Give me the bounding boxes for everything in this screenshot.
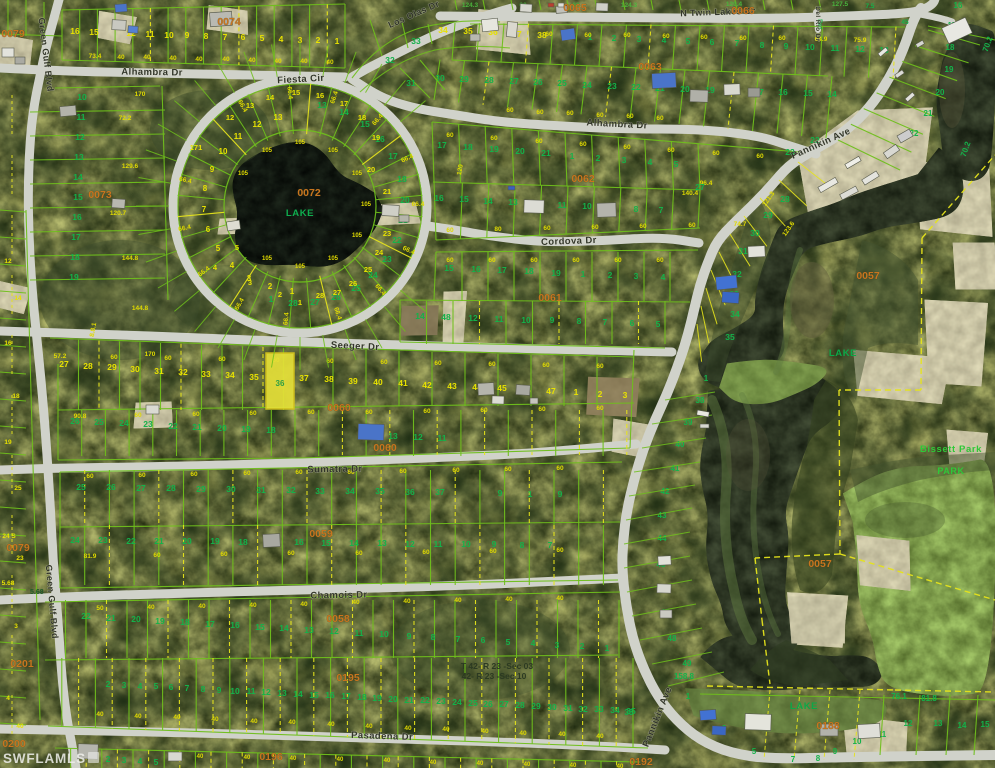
svg-text:40: 40	[300, 601, 308, 608]
svg-text:20: 20	[400, 195, 410, 205]
svg-text:1: 1	[570, 151, 575, 161]
svg-text:7: 7	[185, 683, 190, 693]
svg-text:60: 60	[399, 468, 407, 475]
svg-text:13: 13	[388, 431, 398, 441]
svg-text:48: 48	[441, 312, 451, 322]
svg-text:60: 60	[667, 147, 675, 154]
svg-text:105: 105	[295, 264, 306, 270]
svg-text:5: 5	[686, 36, 691, 46]
svg-text:22: 22	[631, 82, 641, 92]
svg-text:11: 11	[831, 43, 840, 53]
svg-text:60: 60	[489, 548, 497, 555]
svg-text:60: 60	[192, 411, 200, 418]
svg-text:10: 10	[219, 147, 228, 156]
svg-text:33: 33	[411, 36, 421, 46]
svg-text:30: 30	[750, 228, 760, 238]
svg-text:13: 13	[277, 688, 287, 698]
svg-text:30: 30	[226, 484, 236, 494]
svg-text:4: 4	[230, 261, 235, 270]
svg-text:19: 19	[4, 439, 12, 446]
svg-text:0073: 0073	[88, 189, 112, 201]
svg-text:1: 1	[686, 692, 691, 701]
svg-text:5: 5	[752, 747, 757, 756]
svg-text:15: 15	[459, 194, 469, 204]
svg-text:18: 18	[180, 617, 190, 627]
svg-text:16: 16	[316, 91, 324, 100]
svg-text:6: 6	[630, 318, 635, 328]
svg-text:75.9: 75.9	[854, 37, 867, 44]
svg-text:6: 6	[481, 635, 486, 645]
svg-text:2: 2	[106, 754, 111, 764]
svg-text:20: 20	[515, 146, 525, 156]
svg-text:5: 5	[674, 159, 679, 169]
svg-text:16: 16	[434, 193, 444, 203]
svg-text:40: 40	[524, 762, 531, 768]
svg-text:30: 30	[130, 364, 140, 374]
svg-text:3: 3	[248, 278, 252, 287]
svg-text:60: 60	[688, 222, 696, 229]
svg-text:34: 34	[610, 705, 620, 715]
svg-text:10: 10	[77, 92, 87, 102]
svg-text:48: 48	[668, 634, 677, 643]
svg-text:40: 40	[249, 602, 257, 609]
svg-text:40: 40	[505, 596, 513, 603]
svg-text:27: 27	[695, 182, 705, 192]
svg-text:21: 21	[192, 422, 202, 432]
svg-text:16: 16	[325, 690, 335, 700]
svg-text:40: 40	[244, 755, 251, 761]
svg-text:72.2: 72.2	[119, 115, 132, 122]
svg-text:40: 40	[454, 597, 462, 604]
svg-text:40: 40	[117, 54, 125, 61]
svg-text:Chamois Dr: Chamois Dr	[310, 590, 368, 602]
svg-text:17: 17	[341, 691, 351, 701]
svg-text:15: 15	[292, 88, 300, 97]
svg-text:19: 19	[945, 65, 954, 74]
svg-text:105: 105	[328, 256, 339, 262]
svg-text:0079: 0079	[1, 28, 25, 40]
svg-text:29: 29	[459, 74, 469, 84]
svg-text:60: 60	[490, 135, 498, 142]
svg-text:33: 33	[594, 704, 604, 714]
svg-text:Cordova Dr: Cordova Dr	[541, 235, 597, 248]
svg-text:40: 40	[16, 723, 24, 730]
svg-text:0066: 0066	[731, 5, 755, 17]
svg-text:8: 8	[577, 316, 582, 326]
svg-text:3: 3	[122, 680, 127, 690]
svg-text:2: 2	[612, 33, 617, 43]
svg-text:4: 4	[648, 157, 653, 167]
svg-text:25: 25	[468, 698, 478, 708]
svg-text:18: 18	[70, 252, 80, 262]
svg-text:73.4: 73.4	[89, 53, 102, 60]
svg-text:LAKE: LAKE	[829, 348, 857, 359]
svg-text:60: 60	[535, 138, 543, 145]
svg-text:15: 15	[981, 720, 990, 729]
svg-text:60: 60	[623, 32, 631, 39]
svg-text:60: 60	[86, 473, 94, 480]
svg-text:12: 12	[329, 626, 339, 636]
svg-text:0061: 0061	[538, 292, 562, 304]
svg-text:12: 12	[253, 120, 262, 129]
svg-text:10: 10	[461, 539, 471, 549]
svg-text:0062: 0062	[571, 173, 595, 185]
svg-text:24: 24	[452, 697, 462, 707]
svg-text:13: 13	[508, 197, 518, 207]
svg-text:3: 3	[637, 34, 642, 44]
svg-text:6: 6	[710, 37, 715, 47]
svg-text:40: 40	[250, 718, 258, 725]
svg-text:0063: 0063	[638, 61, 662, 73]
svg-text:144.8: 144.8	[132, 305, 149, 312]
svg-text:0057: 0057	[856, 270, 880, 282]
svg-text:2: 2	[106, 679, 111, 689]
svg-text:40: 40	[481, 728, 489, 735]
svg-text:16: 16	[294, 537, 304, 547]
svg-text:13: 13	[74, 152, 84, 162]
svg-text:1: 1	[290, 287, 295, 296]
svg-text:20: 20	[936, 88, 945, 97]
svg-text:40: 40	[365, 723, 373, 730]
svg-text:8: 8	[760, 40, 765, 50]
svg-text:60: 60	[504, 466, 512, 473]
svg-text:40: 40	[211, 716, 219, 723]
svg-text:12: 12	[405, 539, 415, 549]
svg-text:42: 42	[422, 380, 432, 390]
svg-text:36: 36	[405, 487, 415, 497]
svg-text:22: 22	[392, 235, 402, 245]
svg-text:16: 16	[778, 87, 788, 97]
svg-text:7: 7	[456, 634, 461, 644]
svg-text:3: 3	[622, 155, 627, 165]
svg-text:41: 41	[398, 378, 408, 388]
svg-text:12: 12	[855, 44, 865, 54]
svg-text:5: 5	[154, 681, 159, 691]
svg-text:12: 12	[261, 687, 271, 697]
svg-text:60: 60	[778, 35, 786, 42]
svg-text:23: 23	[383, 229, 391, 238]
svg-text:23: 23	[16, 555, 24, 562]
svg-text:25: 25	[94, 417, 104, 427]
svg-text:40: 40	[430, 760, 437, 766]
svg-text:17: 17	[388, 151, 398, 161]
svg-text:40: 40	[147, 604, 155, 611]
svg-text:5: 5	[235, 243, 239, 252]
svg-text:14: 14	[349, 538, 359, 548]
svg-text:13: 13	[317, 100, 327, 110]
svg-text:4: 4	[279, 34, 284, 44]
svg-text:8: 8	[201, 684, 206, 694]
svg-text:18: 18	[397, 174, 407, 184]
svg-text:60: 60	[190, 471, 198, 478]
svg-text:0196: 0196	[259, 751, 283, 763]
svg-text:11: 11	[247, 686, 256, 696]
svg-text:120.7: 120.7	[110, 210, 127, 217]
svg-text:9: 9	[558, 489, 563, 499]
svg-text:7: 7	[223, 32, 228, 42]
svg-text:9: 9	[185, 30, 190, 40]
svg-text:27: 27	[136, 483, 146, 493]
svg-text:9: 9	[833, 747, 838, 756]
svg-text:40: 40	[300, 58, 308, 65]
svg-text:40: 40	[617, 764, 624, 768]
svg-text:16: 16	[70, 26, 80, 36]
svg-text:3: 3	[555, 640, 560, 650]
svg-text:60: 60	[446, 132, 454, 139]
svg-text:20: 20	[182, 536, 192, 546]
svg-text:21: 21	[383, 187, 391, 196]
svg-text:66.4: 66.4	[282, 312, 290, 326]
svg-text:0200: 0200	[2, 738, 26, 750]
svg-text:60: 60	[579, 141, 587, 148]
svg-text:21: 21	[106, 613, 116, 623]
svg-text:14: 14	[73, 172, 83, 182]
svg-text:14: 14	[827, 89, 837, 99]
svg-text:1: 1	[335, 36, 340, 46]
svg-text:13: 13	[304, 625, 314, 635]
svg-text:37: 37	[299, 373, 309, 383]
svg-text:26: 26	[106, 482, 116, 492]
svg-text:7: 7	[791, 755, 796, 764]
svg-text:18: 18	[238, 537, 248, 547]
svg-text:8: 8	[204, 31, 209, 41]
svg-text:35: 35	[625, 708, 634, 717]
svg-text:11: 11	[438, 433, 447, 443]
svg-text:4: 4	[6, 695, 10, 702]
svg-text:25: 25	[557, 78, 567, 88]
svg-text:8: 8	[634, 204, 639, 214]
svg-text:0201: 0201	[10, 658, 34, 670]
svg-text:0072: 0072	[297, 187, 321, 199]
svg-text:0192: 0192	[629, 756, 653, 768]
svg-text:S 24 S: S 24 S	[0, 533, 16, 540]
svg-text:60: 60	[756, 153, 764, 160]
svg-text:13: 13	[246, 101, 254, 110]
svg-text:11: 11	[234, 132, 243, 141]
svg-text:12: 12	[468, 313, 478, 323]
svg-text:20: 20	[388, 694, 398, 704]
svg-text:60: 60	[249, 410, 257, 417]
svg-text:10: 10	[805, 42, 815, 52]
svg-text:2: 2	[596, 153, 601, 163]
svg-text:11: 11	[77, 112, 86, 122]
svg-text:4: 4	[661, 272, 666, 282]
svg-text:105: 105	[262, 256, 273, 262]
svg-text:40: 40	[274, 58, 282, 65]
svg-text:33: 33	[201, 369, 211, 379]
svg-text:26: 26	[483, 699, 493, 709]
svg-text:60: 60	[656, 257, 664, 264]
svg-text:16: 16	[72, 212, 82, 222]
svg-text:1: 1	[605, 643, 610, 653]
svg-text:Sumatra Dr: Sumatra Dr	[307, 464, 362, 476]
svg-text:SWFLAMLS: SWFLAMLS	[3, 751, 86, 766]
svg-text:47: 47	[546, 386, 556, 396]
svg-text:60: 60	[446, 257, 454, 264]
svg-text:74.7: 74.7	[734, 221, 747, 228]
svg-text:60: 60	[488, 361, 496, 368]
svg-text:18: 18	[266, 425, 276, 435]
svg-text:40: 40	[373, 377, 383, 387]
svg-text:25: 25	[14, 485, 22, 492]
svg-text:34: 34	[345, 486, 355, 496]
svg-text:8: 8	[431, 632, 436, 642]
svg-text:19: 19	[551, 268, 561, 278]
svg-text:3: 3	[14, 623, 18, 630]
svg-text:60: 60	[164, 355, 172, 362]
svg-text:60: 60	[295, 469, 303, 476]
svg-text:60: 60	[545, 31, 553, 38]
svg-text:14: 14	[14, 295, 22, 302]
svg-text:105: 105	[361, 202, 372, 208]
svg-text:5: 5	[656, 319, 661, 329]
svg-text:105: 105	[262, 148, 273, 154]
svg-text:0057: 0057	[808, 558, 832, 570]
svg-text:0058: 0058	[326, 613, 350, 625]
svg-text:40: 40	[288, 719, 296, 726]
svg-text:26: 26	[349, 279, 357, 288]
svg-text:0074: 0074	[217, 16, 241, 28]
svg-text:28: 28	[166, 483, 176, 493]
svg-text:22: 22	[420, 695, 430, 705]
svg-text:14: 14	[958, 721, 967, 730]
svg-text:40: 40	[556, 595, 564, 602]
svg-text:3: 3	[634, 271, 639, 281]
svg-text:6: 6	[241, 32, 246, 42]
svg-text:60: 60	[110, 354, 118, 361]
svg-text:17: 17	[437, 140, 447, 150]
svg-text:60: 60	[566, 110, 574, 117]
svg-text:57.2: 57.2	[54, 353, 67, 360]
svg-text:11: 11	[146, 29, 155, 39]
svg-text:1: 1	[704, 374, 709, 383]
svg-text:2: 2	[608, 270, 613, 280]
svg-text:22: 22	[81, 611, 91, 621]
svg-text:23: 23	[98, 535, 108, 545]
svg-text:29: 29	[531, 701, 541, 711]
svg-text:60: 60	[584, 32, 592, 39]
svg-text:60: 60	[596, 405, 604, 412]
svg-text:LAKE: LAKE	[286, 208, 314, 219]
svg-text:35: 35	[249, 372, 259, 382]
svg-text:14: 14	[483, 196, 493, 206]
svg-text:39: 39	[348, 376, 358, 386]
svg-text:21: 21	[924, 109, 933, 118]
svg-text:5: 5	[260, 33, 265, 43]
svg-text:40: 40	[248, 57, 256, 64]
svg-text:34: 34	[225, 370, 235, 380]
svg-text:25: 25	[76, 482, 86, 492]
svg-text:127.5: 127.5	[832, 1, 849, 8]
svg-text:14: 14	[266, 93, 275, 102]
svg-text:60: 60	[220, 551, 228, 558]
svg-text:23: 23	[607, 81, 617, 91]
svg-text:15: 15	[73, 192, 83, 202]
svg-text:35: 35	[725, 332, 735, 342]
svg-text:23: 23	[436, 696, 446, 706]
svg-text:0060: 0060	[327, 402, 351, 414]
svg-text:Del Rio Dr: Del Rio Dr	[814, 6, 821, 41]
svg-text:13: 13	[377, 538, 387, 548]
svg-text:0195: 0195	[336, 672, 360, 684]
svg-text:14: 14	[279, 623, 289, 633]
svg-text:60: 60	[506, 107, 514, 114]
svg-text:170: 170	[145, 351, 156, 358]
svg-text:12: 12	[904, 719, 913, 728]
svg-text:18: 18	[463, 142, 473, 152]
svg-text:1: 1	[528, 489, 533, 499]
svg-text:22: 22	[126, 536, 136, 546]
svg-text:28: 28	[83, 361, 93, 371]
svg-text:33: 33	[315, 486, 325, 496]
svg-text:66.4: 66.4	[412, 201, 425, 208]
svg-text:45: 45	[497, 383, 507, 393]
svg-text:40: 40	[197, 754, 204, 760]
svg-text:60: 60	[542, 362, 550, 369]
svg-text:10: 10	[379, 629, 389, 639]
svg-text:4: 4	[531, 638, 536, 648]
svg-text:19: 19	[155, 616, 165, 626]
svg-text:35: 35	[375, 486, 385, 496]
svg-text:60: 60	[307, 409, 315, 416]
svg-text:60: 60	[596, 363, 604, 370]
svg-text:60: 60	[662, 33, 670, 40]
svg-text:17: 17	[497, 265, 507, 275]
svg-text:25: 25	[364, 265, 372, 274]
svg-text:LAKE: LAKE	[790, 701, 818, 712]
svg-text:60: 60	[739, 35, 747, 42]
svg-text:17: 17	[71, 232, 81, 242]
svg-text:60: 60	[591, 224, 599, 231]
svg-text:27: 27	[333, 288, 341, 297]
svg-text:60: 60	[623, 144, 631, 151]
svg-text:124.3: 124.3	[621, 2, 638, 9]
svg-text:2: 2	[598, 389, 603, 399]
svg-text:12: 12	[75, 132, 85, 142]
svg-text:31: 31	[154, 366, 164, 376]
svg-text:23: 23	[382, 254, 392, 264]
svg-text:76.1: 76.1	[891, 692, 907, 701]
svg-text:29: 29	[196, 484, 206, 494]
svg-text:40: 40	[134, 713, 142, 720]
svg-text:0060: 0060	[373, 442, 397, 454]
svg-text:18: 18	[358, 113, 366, 122]
svg-text:60: 60	[656, 115, 664, 122]
svg-text:3: 3	[623, 390, 628, 400]
svg-text:2: 2	[580, 641, 585, 651]
svg-text:15: 15	[89, 27, 99, 37]
svg-text:30: 30	[547, 702, 557, 712]
svg-text:11: 11	[495, 314, 504, 324]
svg-text:7: 7	[659, 205, 664, 215]
svg-text:12: 12	[226, 113, 234, 122]
svg-text:40: 40	[143, 54, 151, 61]
svg-text:32: 32	[578, 704, 588, 714]
svg-text:60: 60	[639, 223, 647, 230]
svg-text:124.3: 124.3	[462, 2, 479, 9]
svg-text:90.8: 90.8	[74, 413, 87, 420]
svg-text:22: 22	[168, 421, 178, 431]
svg-text:17: 17	[340, 99, 348, 108]
svg-text:8: 8	[520, 540, 525, 550]
svg-text:5.68: 5.68	[2, 580, 15, 587]
svg-text:38: 38	[324, 374, 334, 384]
svg-text:42- R 23 -Sec 10: 42- R 23 -Sec 10	[462, 671, 527, 681]
svg-text:28: 28	[484, 75, 494, 85]
svg-text:15: 15	[444, 263, 454, 273]
svg-text:60: 60	[556, 465, 564, 472]
svg-text:27: 27	[59, 359, 69, 369]
